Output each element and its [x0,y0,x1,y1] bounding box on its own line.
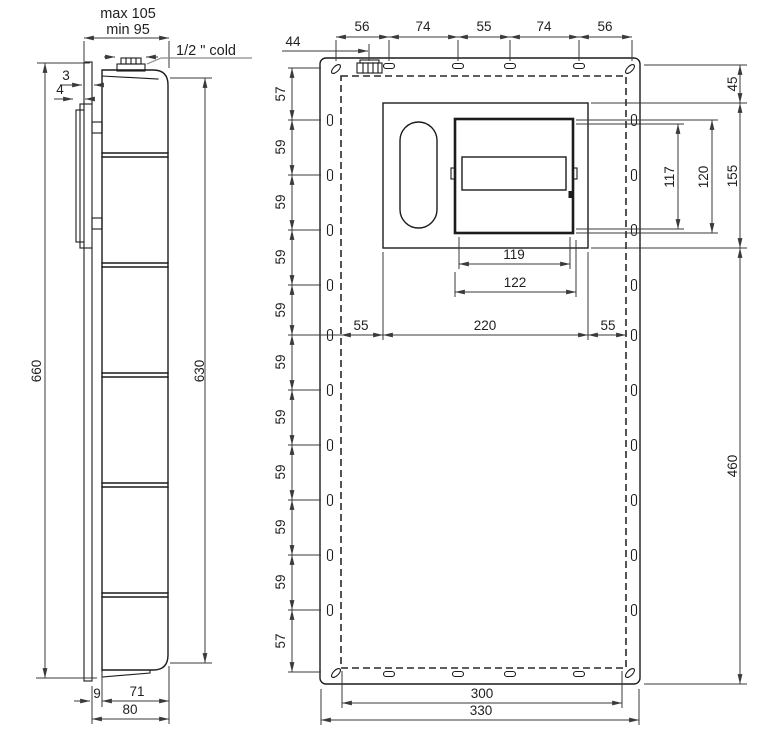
recess-dashed-outline [341,76,626,668]
side-spacing-label: 59 [273,139,288,154]
side-spacing-label: 59 [273,409,288,424]
side-view [76,58,168,681]
recess-width-label: 220 [474,318,497,333]
front-height-label: 630 [192,360,207,383]
total-depth-label: 80 [122,702,137,717]
window-outer-height-label: 120 [696,166,711,189]
top-edge-slots [384,64,585,69]
overall-height-label: 660 [29,360,44,383]
window-outer-width-label: 122 [504,275,527,290]
window-slot [462,157,566,190]
recess-height-label: 155 [725,165,740,188]
side-spacing-label: 59 [273,464,288,479]
plate-thickness-label: 3 [62,68,70,83]
side-spacing-label: 57 [273,86,288,101]
window-frame [455,119,573,233]
top-spacing-label: 55 [476,19,491,34]
cold-connection-label: 1/2 " cold [176,43,236,59]
wall-plate [84,62,92,681]
side-spacing-label: 59 [273,519,288,534]
top-margin-label: 45 [725,76,740,91]
window-inner-height-label: 117 [662,166,677,188]
frame-gap-label: 4 [56,82,64,97]
side-spacing-label: 59 [273,574,288,589]
left-edge-slots [328,115,333,616]
side-spacing-label: 59 [273,302,288,317]
depth-min-label: min 95 [106,22,150,38]
window-inner-width-label: 119 [503,247,525,262]
corner-hole [624,63,636,75]
side-body-outline [102,70,168,670]
side-spacing-label: 59 [273,249,288,264]
top-spacing-chain: 56 74 55 74 56 [336,19,632,61]
overall-width-label: 330 [470,703,493,718]
panel-outline [320,58,640,684]
shelf-lines [102,153,168,597]
inlet-offset-label: 44 [285,34,301,49]
front-view [320,58,640,684]
side-view-dimensions: max 105 min 95 1/2 " cold 3 4 660 630 9 … [29,6,252,724]
side-body-lid-line [102,76,158,79]
inner-panel [383,103,588,248]
side-spacing-label: 57 [273,633,288,648]
side-spacing-label: 59 [273,354,288,369]
cold-water-fitting-front [357,60,382,73]
corner-hole [330,667,342,679]
left-margin-label: 55 [353,318,368,333]
window-latch [569,191,573,198]
depth-max-label: max 105 [100,6,156,22]
front-view-dimensions: 44 56 74 55 74 56 [273,19,747,725]
corner-hole [624,667,636,679]
cold-water-fitting-side [117,58,145,71]
technical-drawing-canvas: max 105 min 95 1/2 " cold 3 4 660 630 9 … [0,0,768,736]
right-margin-label: 55 [600,318,615,333]
flush-frame-protrusion [76,104,102,248]
top-spacing-label: 74 [536,19,552,34]
wall-offset-label: 9 [93,686,101,701]
lower-height-label: 460 [725,455,740,478]
oval-cutout [400,122,437,228]
top-spacing-label: 56 [354,19,369,34]
corner-holes [330,63,636,679]
corner-hole [330,63,342,75]
bottom-edge-slots [384,672,585,677]
side-bottom-wedge [102,670,150,677]
top-spacing-label: 56 [597,19,612,34]
body-depth-label: 71 [129,684,144,699]
installation-drawing: max 105 min 95 1/2 " cold 3 4 660 630 9 … [0,0,768,736]
right-edge-slots [632,115,637,616]
side-spacing-chain: 57 59 59 59 59 59 59 59 59 59 57 [273,68,345,672]
top-spacing-label: 74 [415,19,431,34]
side-spacing-label: 59 [273,194,288,209]
slot-span-label: 300 [471,686,494,701]
